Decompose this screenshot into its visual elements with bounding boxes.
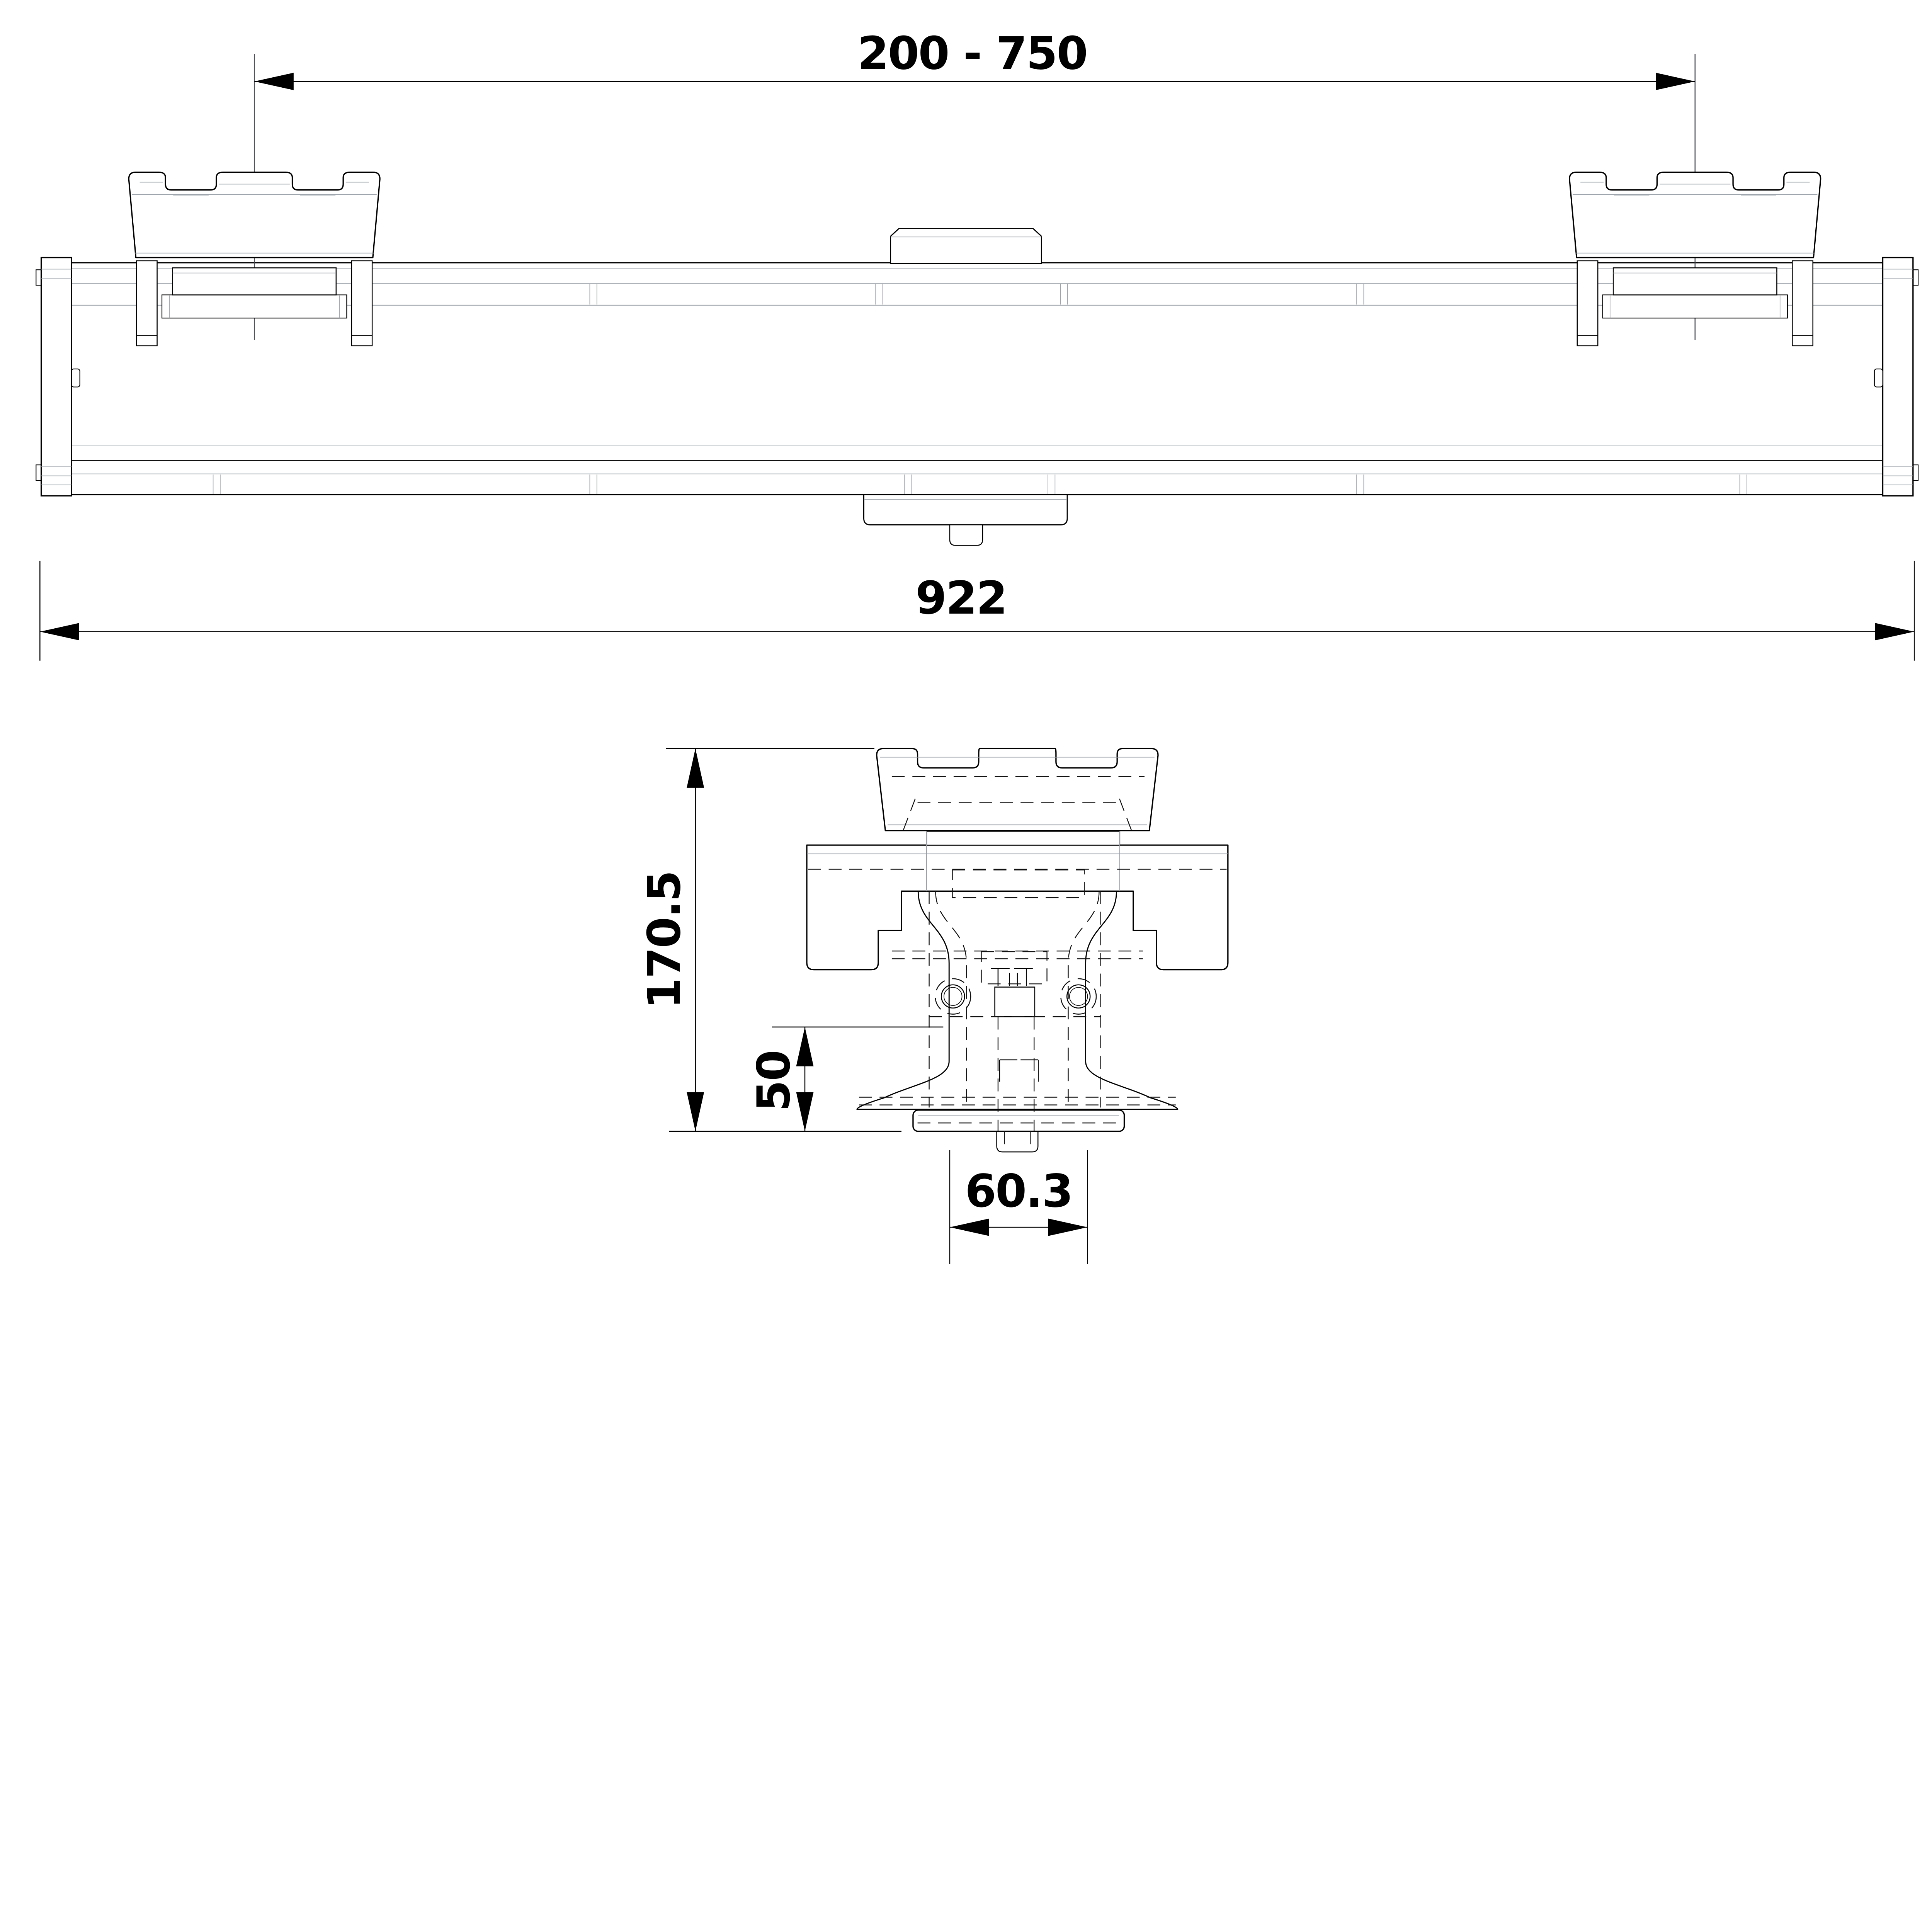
section-stub <box>997 1131 1038 1152</box>
section-view <box>807 748 1228 1152</box>
dimension-label-mount-height: 50 <box>748 1051 800 1111</box>
arrowhead-bottom <box>687 1092 704 1131</box>
section-flange <box>913 1110 1124 1131</box>
rail-ticks-lower <box>213 474 1747 494</box>
section-body <box>857 891 1178 1109</box>
rail-bottom-stub <box>950 525 983 545</box>
end-cap-side-tab <box>71 369 80 387</box>
dimension-label-overall-height: 170.5 <box>638 871 691 1009</box>
dimension-overall-length: 922 <box>40 561 1914 660</box>
dimension-label-pipe-width: 60.3 <box>965 1165 1072 1218</box>
dimension-label-bracket-spacing: 200 - 750 <box>857 27 1087 80</box>
rail-bottom-tab <box>864 495 1067 546</box>
technical-drawing: 200 - 750 922 170.5 50 60.3 <box>0 0 1932 1932</box>
arrowhead-left <box>254 73 294 90</box>
section-cap <box>877 748 1158 830</box>
arrowhead-left <box>40 623 79 640</box>
section-cap-base <box>927 831 1120 845</box>
rail-ticks-upper <box>213 284 1747 304</box>
arrowhead-left <box>950 1219 989 1236</box>
dimension-label-overall-length: 922 <box>915 572 1007 624</box>
arrowhead-right <box>1875 623 1915 640</box>
dimension-bracket-spacing: 200 - 750 <box>254 27 1695 90</box>
dimension-pipe-width: 60.3 <box>950 1150 1088 1264</box>
arrowhead-right <box>1048 1219 1088 1236</box>
front-view <box>36 54 1918 545</box>
drawing-canvas: 200 - 750 922 170.5 50 60.3 <box>0 0 1932 1932</box>
arrowhead-right <box>1656 73 1695 90</box>
clamp-bracket-left <box>129 54 380 346</box>
rail-top-tab <box>891 229 1042 264</box>
clamp-bracket-right <box>1570 54 1821 346</box>
arrowhead-top <box>687 748 704 788</box>
end-cap-side-tab <box>1874 369 1883 387</box>
